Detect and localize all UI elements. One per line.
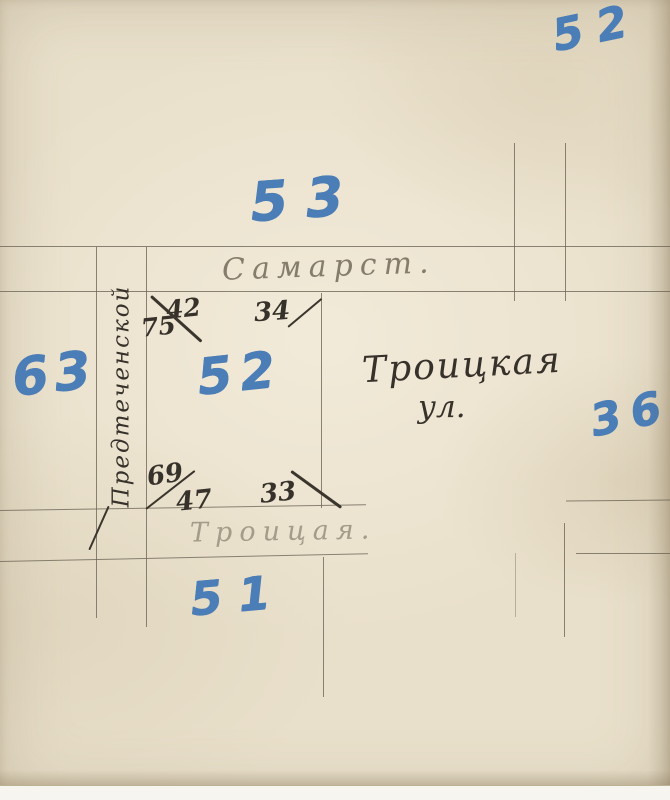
block-number-south: 51 <box>188 568 288 622</box>
house-number-sw-lower: 47 <box>175 486 214 516</box>
scan-edge-shadow-bottom <box>0 770 670 786</box>
street-line-top-lower <box>0 291 670 292</box>
street-line-left-outer <box>96 247 97 618</box>
street-line-right-outer-upper <box>514 143 515 301</box>
scan-edge-shadow-right <box>648 0 670 800</box>
map-sheet: 52 53 63 52 36 51 Самарст. Троицая. Пред… <box>0 0 670 800</box>
street-name-bottom: Троицая. <box>190 516 377 546</box>
block-number-center: 52 <box>195 344 285 403</box>
annotation-street-line2: ул. <box>418 392 466 423</box>
street-line-bottom-lower-left <box>0 553 368 562</box>
block-number-north: 53 <box>248 168 363 230</box>
street-line-right-inner-upper <box>565 143 566 301</box>
block-number-west: 63 <box>10 344 99 405</box>
street-line-left-inner <box>146 247 147 627</box>
slash-mark-se <box>290 470 342 509</box>
house-number-se: 33 <box>259 478 298 508</box>
block-edge-center-lower <box>323 557 324 697</box>
house-number-ne: 34 <box>253 298 291 326</box>
street-line-right-outer-lower <box>515 553 516 617</box>
annotation-street-line1: Троицкая <box>361 343 562 389</box>
street-line-top-upper <box>0 246 670 247</box>
scan-border-bottom <box>0 785 670 800</box>
street-name-top: Самарст. <box>222 248 437 285</box>
street-line-right-inner-lower <box>564 523 565 637</box>
flourish-stroke <box>88 506 109 551</box>
house-number-sw-upper: 69 <box>145 460 184 491</box>
slash-mark-ne <box>287 298 322 328</box>
block-edge-center-upper <box>321 293 322 508</box>
street-name-left-vertical-text: Предтеченской <box>108 285 134 508</box>
block-number-top-right: 52 <box>548 0 644 59</box>
